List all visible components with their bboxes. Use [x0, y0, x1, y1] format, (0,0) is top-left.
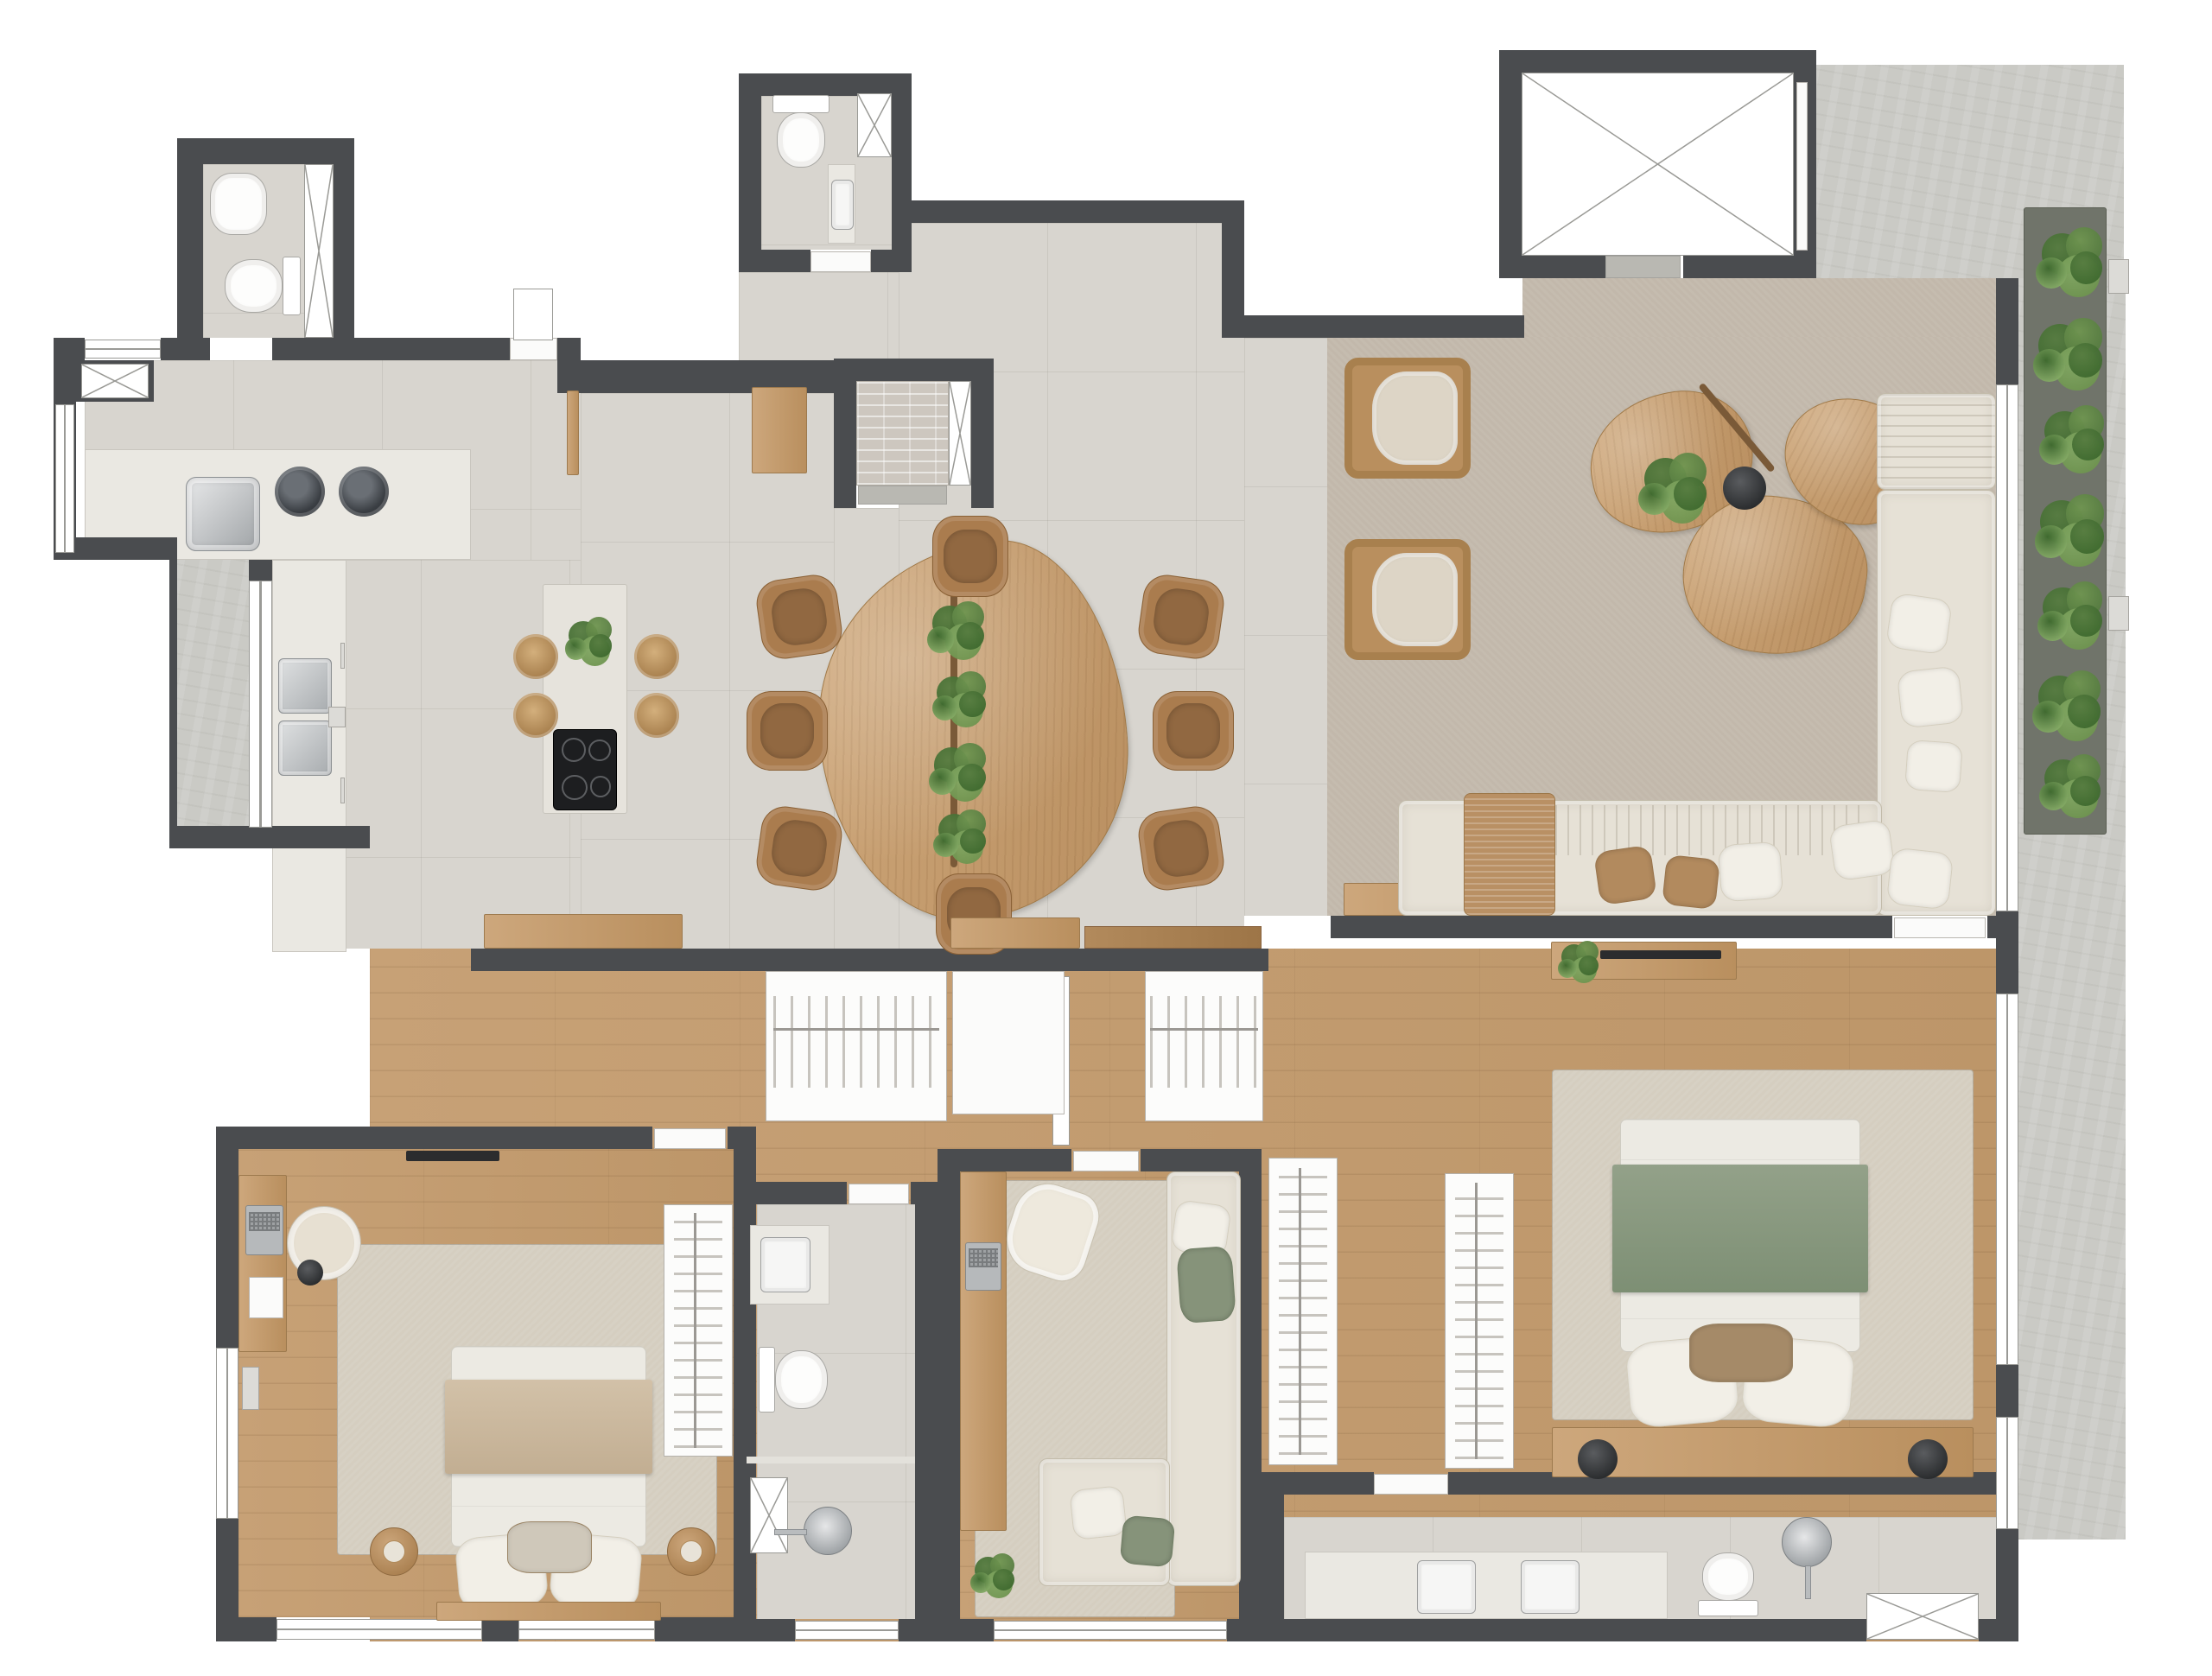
bedroom1-headboard [436, 1602, 661, 1621]
living-carpet-ext [1522, 278, 1996, 337]
masterbath-toilet [1694, 1548, 1763, 1619]
hall-console-b [1084, 926, 1262, 949]
fridge-panel-wood [567, 390, 579, 475]
socialbath-toilet [769, 92, 833, 173]
bath2-toilet [755, 1343, 831, 1417]
powder-toilet-part [283, 257, 301, 316]
bath2-toilet-part [775, 1350, 829, 1410]
east-wall-b [1996, 911, 2018, 994]
cabinet-handle-2 [340, 778, 345, 803]
island-stool-1 [513, 634, 558, 679]
corridor-wall-north [471, 949, 1268, 971]
dining-wall-north [899, 200, 1244, 223]
masterbath-shower-part [1782, 1517, 1832, 1567]
shaft-block-wall-bottom-b [1683, 256, 1816, 278]
office-pillow-2 [1069, 1485, 1128, 1540]
bedroom1-wall-top-a [216, 1127, 652, 1149]
balcony-window-stub-top [249, 560, 272, 581]
east-wall-a [1996, 278, 2018, 384]
refrigerator-left [581, 396, 665, 475]
hall-sideboard [484, 914, 683, 949]
bedroom1-bed-part [445, 1380, 652, 1474]
powder-shaft [304, 164, 334, 338]
socialbath-door [810, 251, 871, 272]
office-plant [966, 1546, 1013, 1593]
bath2-window-south [795, 1621, 899, 1640]
bath2-toilet-part [759, 1347, 776, 1413]
socialbath-wall-left [739, 73, 761, 272]
shaft-block-mat [1605, 256, 1681, 278]
socialbath-toilet-part [777, 112, 825, 168]
living-wall-south-a [1331, 916, 1892, 938]
island-stool-4 [634, 693, 679, 738]
shaft-block-wall-top [1499, 50, 1816, 73]
bath2-basin [760, 1237, 810, 1292]
office-pillow-3 [1120, 1514, 1176, 1567]
dining-chair-2 [747, 691, 828, 771]
service-wall-b [161, 338, 177, 360]
living-wall-north [1222, 315, 1524, 338]
bedroom1-wall-bottom-b [482, 1617, 518, 1641]
kitchen-tall-cabinet [752, 387, 807, 473]
kitchen-sink-2 [278, 721, 332, 776]
sofa-chaise-top [1877, 393, 1996, 490]
east-wall-c [1996, 1365, 2018, 1417]
dressing-closet-west-rail [1299, 1168, 1301, 1456]
powder-toilet-part [225, 259, 283, 313]
dining-runner-plant-4 [928, 802, 983, 857]
hall-console-a [950, 917, 1080, 949]
hall-closet-left-rail [773, 1028, 938, 1031]
main-shaft-void [1522, 73, 1794, 256]
island-stool-2 [513, 693, 558, 738]
entry-hall-shaft [949, 381, 971, 486]
terrace-door [1894, 917, 1986, 938]
terrace-pot-1 [2108, 259, 2129, 294]
masterbath-wall-bottom [1262, 1619, 1866, 1641]
bedroom1-bed [445, 1341, 652, 1617]
bedroom1-bed-part [507, 1521, 592, 1573]
hall-closet-left-rail [773, 996, 938, 1089]
bedroom1-laptop [245, 1205, 283, 1255]
sofa-pillow-3 [1904, 740, 1963, 793]
masterbath-shaft [1866, 1593, 1979, 1640]
office-wall-bottom-a [938, 1619, 994, 1641]
masterbath-door [1374, 1474, 1448, 1495]
bath2-divider [747, 1457, 915, 1463]
socialbath-shaft [857, 93, 892, 157]
suite-wall-south-a [1262, 1472, 1374, 1495]
bedroom1-window-west [216, 1348, 238, 1519]
office-pillow-green [1176, 1246, 1236, 1324]
bedroom1-desk [238, 1175, 287, 1352]
service-shaft [81, 364, 149, 398]
sofa-throw [1464, 793, 1555, 916]
service-window-west [55, 404, 74, 553]
dining-chair-3 [753, 803, 845, 893]
socialbath-wall-right [892, 73, 912, 272]
terrace-plant-4 [2027, 484, 2101, 558]
bath2-door [849, 1184, 909, 1204]
sofa-pillow-1 [1885, 592, 1953, 655]
office-door [1073, 1151, 1139, 1171]
bedroom1-wall-art [242, 1367, 259, 1410]
laundry-bowl-2 [339, 467, 389, 517]
shaft-block-wall-bottom-a [1522, 256, 1605, 278]
sofa-pillow-4 [1828, 818, 1896, 881]
masterbath-shower [1782, 1517, 1832, 1567]
living-window-east [1996, 384, 2018, 911]
powder-wall-bottom-a [177, 338, 210, 360]
sofa-pillow-2 [1897, 665, 1965, 728]
bedroom1-closet-rail [694, 1213, 696, 1449]
terrace-plant-5 [2031, 572, 2100, 641]
powder-door-leaf [513, 289, 553, 340]
living-edge-floor [1244, 338, 1327, 916]
bath2-shower-part [804, 1507, 852, 1555]
entry-hall-wall-bl [834, 486, 856, 508]
office-laptop [965, 1242, 1001, 1291]
service-window-north [85, 340, 161, 359]
refrigerator-right [667, 396, 750, 475]
masterbath-counter [1305, 1552, 1668, 1619]
masterbath-toilet-part [1698, 1600, 1758, 1616]
island-plant [560, 610, 610, 660]
kitchen-faucet [328, 707, 346, 727]
coffee-table-plant [1631, 442, 1704, 515]
entry-hall-brick-floor [856, 381, 949, 486]
masterbath-basin-2 [1521, 1560, 1580, 1614]
bath2-shaft [750, 1477, 788, 1553]
laundry-sink [186, 477, 260, 551]
bedroom1-window-south-a [276, 1619, 482, 1640]
bedroom1-nightstand-left [370, 1527, 418, 1576]
dressing-closet-east-rail [1475, 1183, 1478, 1459]
suite-window-east [1996, 994, 2018, 1365]
cabinet-handle-1 [340, 643, 345, 669]
bedroom1-door [654, 1128, 726, 1149]
hall-dresser [952, 971, 1065, 1114]
master-lamp-right [1908, 1439, 1948, 1479]
bedroom1-wall-bottom-a [216, 1617, 276, 1641]
shaft-block-wall-left [1499, 50, 1522, 278]
sofa-pillow-6 [1593, 845, 1657, 906]
bedroom1-speaker [249, 1277, 283, 1318]
office-wall-right [1239, 1149, 1262, 1641]
masterbath-basin-1 [1417, 1560, 1476, 1614]
dressing-closet-east-rail [1455, 1183, 1503, 1459]
floor-plan [0, 0, 2212, 1676]
floor-lamp-base [1723, 467, 1766, 510]
dressing-closet-west [1268, 1158, 1338, 1465]
office-wall-left [938, 1149, 960, 1641]
hall-closet-right-rail [1150, 996, 1257, 1089]
master-lamp-left [1578, 1439, 1618, 1479]
dining-chair-4 [1135, 572, 1227, 662]
terrace-plant-1 [2029, 218, 2100, 289]
bedroom1-closet-rail [674, 1213, 722, 1449]
masterbath-toilet-part [1702, 1552, 1755, 1601]
masterbath-window-east [1996, 1417, 2018, 1529]
hall-closet-left [766, 971, 947, 1121]
master-bed-part [1689, 1324, 1793, 1383]
dining-chair-7 [932, 516, 1008, 597]
bedroom1-window-south-b [518, 1619, 655, 1640]
socialbath-wall-bottom-b [871, 250, 912, 272]
bedroom1-nightstand-right [667, 1527, 715, 1576]
terrace-plant-2 [2025, 308, 2100, 382]
socialbath-wall-bottom-a [739, 250, 810, 272]
master-console-plant [1554, 935, 1597, 978]
shaft-block-window-sliver [1796, 82, 1808, 251]
powder-door-gap [510, 338, 557, 360]
dining-chair-5 [1153, 691, 1234, 771]
bath2-shower [804, 1507, 852, 1555]
bedroom1-chair-base [297, 1260, 323, 1286]
entry-hall-wall-top [834, 359, 994, 381]
dining-runner-plant-3 [923, 734, 983, 795]
socialbath-toilet-part [772, 95, 829, 113]
bedroom1-wall-left-a [216, 1127, 238, 1348]
bath2-wall-bottom-b [899, 1619, 938, 1641]
living-armchair-1 [1344, 358, 1471, 479]
powder-wall-left [177, 138, 203, 360]
terrace-pot-2 [2108, 596, 2129, 631]
socialbath-basin [831, 180, 854, 230]
bath2-shower-part [774, 1529, 807, 1535]
kitchen-wall-north [354, 338, 510, 360]
island-cooktop [553, 729, 617, 810]
balcony-window-stub-bottom [249, 828, 272, 848]
bath2-wall-right [915, 1182, 938, 1641]
powder-toilet [221, 252, 304, 320]
bedroom1-tv [406, 1151, 499, 1161]
sofa-pillow-7 [1662, 854, 1720, 910]
office-wall-bottom-b [1227, 1619, 1262, 1641]
terrace-plant-3 [2032, 396, 2101, 465]
bath2-wall-top-a [734, 1182, 847, 1204]
island-stool-3 [634, 634, 679, 679]
dressing-closet-east [1445, 1173, 1514, 1469]
entry-hall-wall-br [971, 486, 994, 508]
office-window-south [994, 1621, 1227, 1640]
masterbath-shower-part [1805, 1565, 1811, 1599]
powder-sink [210, 173, 267, 235]
dining-runner-plant-2 [926, 663, 983, 721]
bath2-wall-bottom-a [734, 1619, 795, 1641]
master-bed [1612, 1113, 1868, 1434]
hall-closet-right [1145, 971, 1263, 1121]
laundry-bowl-1 [275, 467, 325, 517]
hall-closet-right-rail [1150, 1028, 1257, 1031]
kitchen-sink-1 [278, 658, 332, 714]
balcony-window [249, 581, 272, 828]
dressing-closet-west-rail [1279, 1168, 1327, 1456]
balcony-lip [169, 560, 177, 848]
living-armchair-2 [1344, 539, 1471, 660]
master-bed-part [1612, 1165, 1868, 1293]
service-balcony-floor [177, 560, 249, 848]
sofa-pillow-8 [1718, 841, 1783, 903]
bath-social-vestibule-floor [739, 272, 899, 370]
office-desk [960, 1171, 1007, 1531]
powder-wall-top [177, 138, 354, 164]
terrace-plant-7 [2032, 745, 2098, 810]
dining-chair-6 [1135, 803, 1227, 893]
powder-wall-bottom-b [272, 338, 354, 360]
entry-hall-mat [858, 486, 947, 505]
sofa-pillow-5 [1886, 847, 1955, 910]
dining-runner-plant-1 [921, 593, 982, 653]
terrace-plant-6 [2025, 660, 2098, 733]
master-tv [1600, 950, 1721, 959]
east-wall-d [1996, 1529, 2018, 1641]
dining-chair-1 [753, 572, 845, 662]
powder-wall-right [334, 138, 354, 360]
bedroom1-closet [664, 1204, 733, 1457]
